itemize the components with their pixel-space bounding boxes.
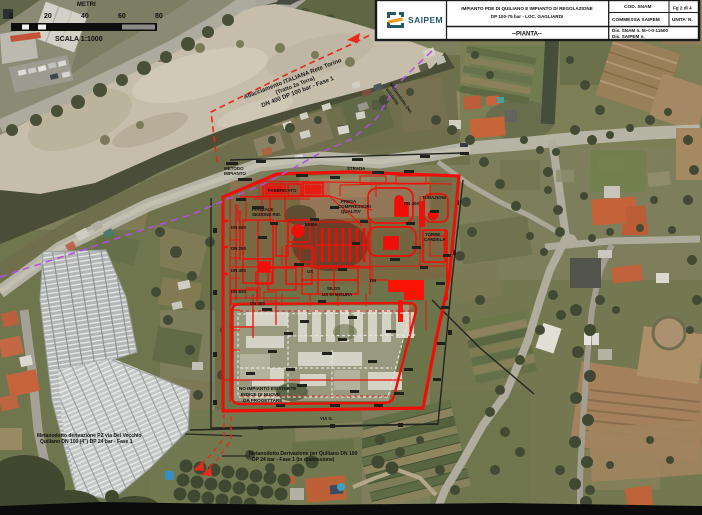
svg-text:Dis. SNAM n. M-<-0-11500: Dis. SNAM n. M-<-0-11500 — [612, 28, 668, 33]
svg-text:DP 100-75 bar - LOC. GAGLIAR: DP 100-75 bar - LOC. GAGLIARDI — [491, 14, 563, 19]
svg-text:METRI: METRI — [77, 2, 96, 8]
svg-text:US: US — [307, 269, 313, 274]
svg-text:DN 400: DN 400 — [404, 201, 419, 206]
svg-text:CANDELA: CANDELA — [424, 237, 446, 242]
svg-text:SAIPEM: SAIPEM — [408, 15, 443, 25]
svg-text:QUALITA': QUALITA' — [341, 209, 361, 214]
svg-text:UNITA' N.: UNITA' N. — [672, 17, 693, 22]
svg-text:80: 80 — [155, 13, 163, 20]
svg-text:Quiliano DN 100 (4") DP 24 bar: Quiliano DN 100 (4") DP 24 bar - Fase 1 — [40, 439, 133, 445]
svg-text:COD. SNAM: COD. SNAM — [624, 4, 651, 10]
svg-text:NO IMPIANTO ESISTENTE: NO IMPIANTO ESISTENTE — [239, 386, 296, 391]
svg-text:IMPIANTO PDE DI QUILIANO E IMP: IMPIANTO PDE DI QUILIANO E IMPIANTO DI R… — [461, 6, 593, 11]
svg-text:DN 250: DN 250 — [231, 246, 246, 251]
svg-text:STRADA: STRADA — [347, 166, 366, 171]
svg-text:IMPIANTO: IMPIANTO — [224, 171, 246, 176]
svg-text:VIA G.: VIA G. — [320, 416, 333, 421]
svg-text:SILOS: SILOS — [327, 286, 340, 291]
svg-text:Fg 2 di 4: Fg 2 di 4 — [673, 6, 692, 11]
svg-text:60: 60 — [118, 13, 126, 20]
svg-text:DA PROGETTARE: DA PROGETTARE — [243, 398, 282, 403]
svg-text:DN 650: DN 650 — [231, 225, 246, 230]
svg-text:SCALA 1:1000: SCALA 1:1000 — [55, 36, 103, 43]
svg-text:20: 20 — [44, 13, 52, 20]
svg-text:40: 40 — [81, 13, 89, 20]
svg-text:DN 650: DN 650 — [231, 289, 246, 294]
svg-text:DN: DN — [370, 278, 376, 283]
svg-text:DN 400: DN 400 — [250, 301, 265, 306]
svg-text:TUBAZIONI: TUBAZIONI — [422, 195, 446, 200]
svg-text:DP 24 bar - Fase 1 (in dismiss: DP 24 bar - Fase 1 (in dismissione) — [252, 457, 335, 463]
svg-text:--PIANTA--: --PIANTA-- — [512, 32, 542, 38]
svg-text:SEZIONE RID.: SEZIONE RID. — [252, 212, 281, 217]
svg-text:US DI MISURA: US DI MISURA — [322, 292, 353, 297]
svg-text:ERBA: ERBA — [305, 222, 318, 227]
svg-text:INDICE DI NUOVE: INDICE DI NUOVE — [241, 392, 280, 397]
svg-text:0: 0 — [9, 13, 13, 20]
svg-text:DN 400: DN 400 — [231, 268, 246, 273]
svg-text:COMMESSA SAIPEM: COMMESSA SAIPEM — [612, 17, 660, 23]
svg-text:Dis. SAIPEM n.: Dis. SAIPEM n. — [612, 34, 645, 39]
svg-text:FABBRICATO: FABBRICATO — [268, 188, 297, 193]
